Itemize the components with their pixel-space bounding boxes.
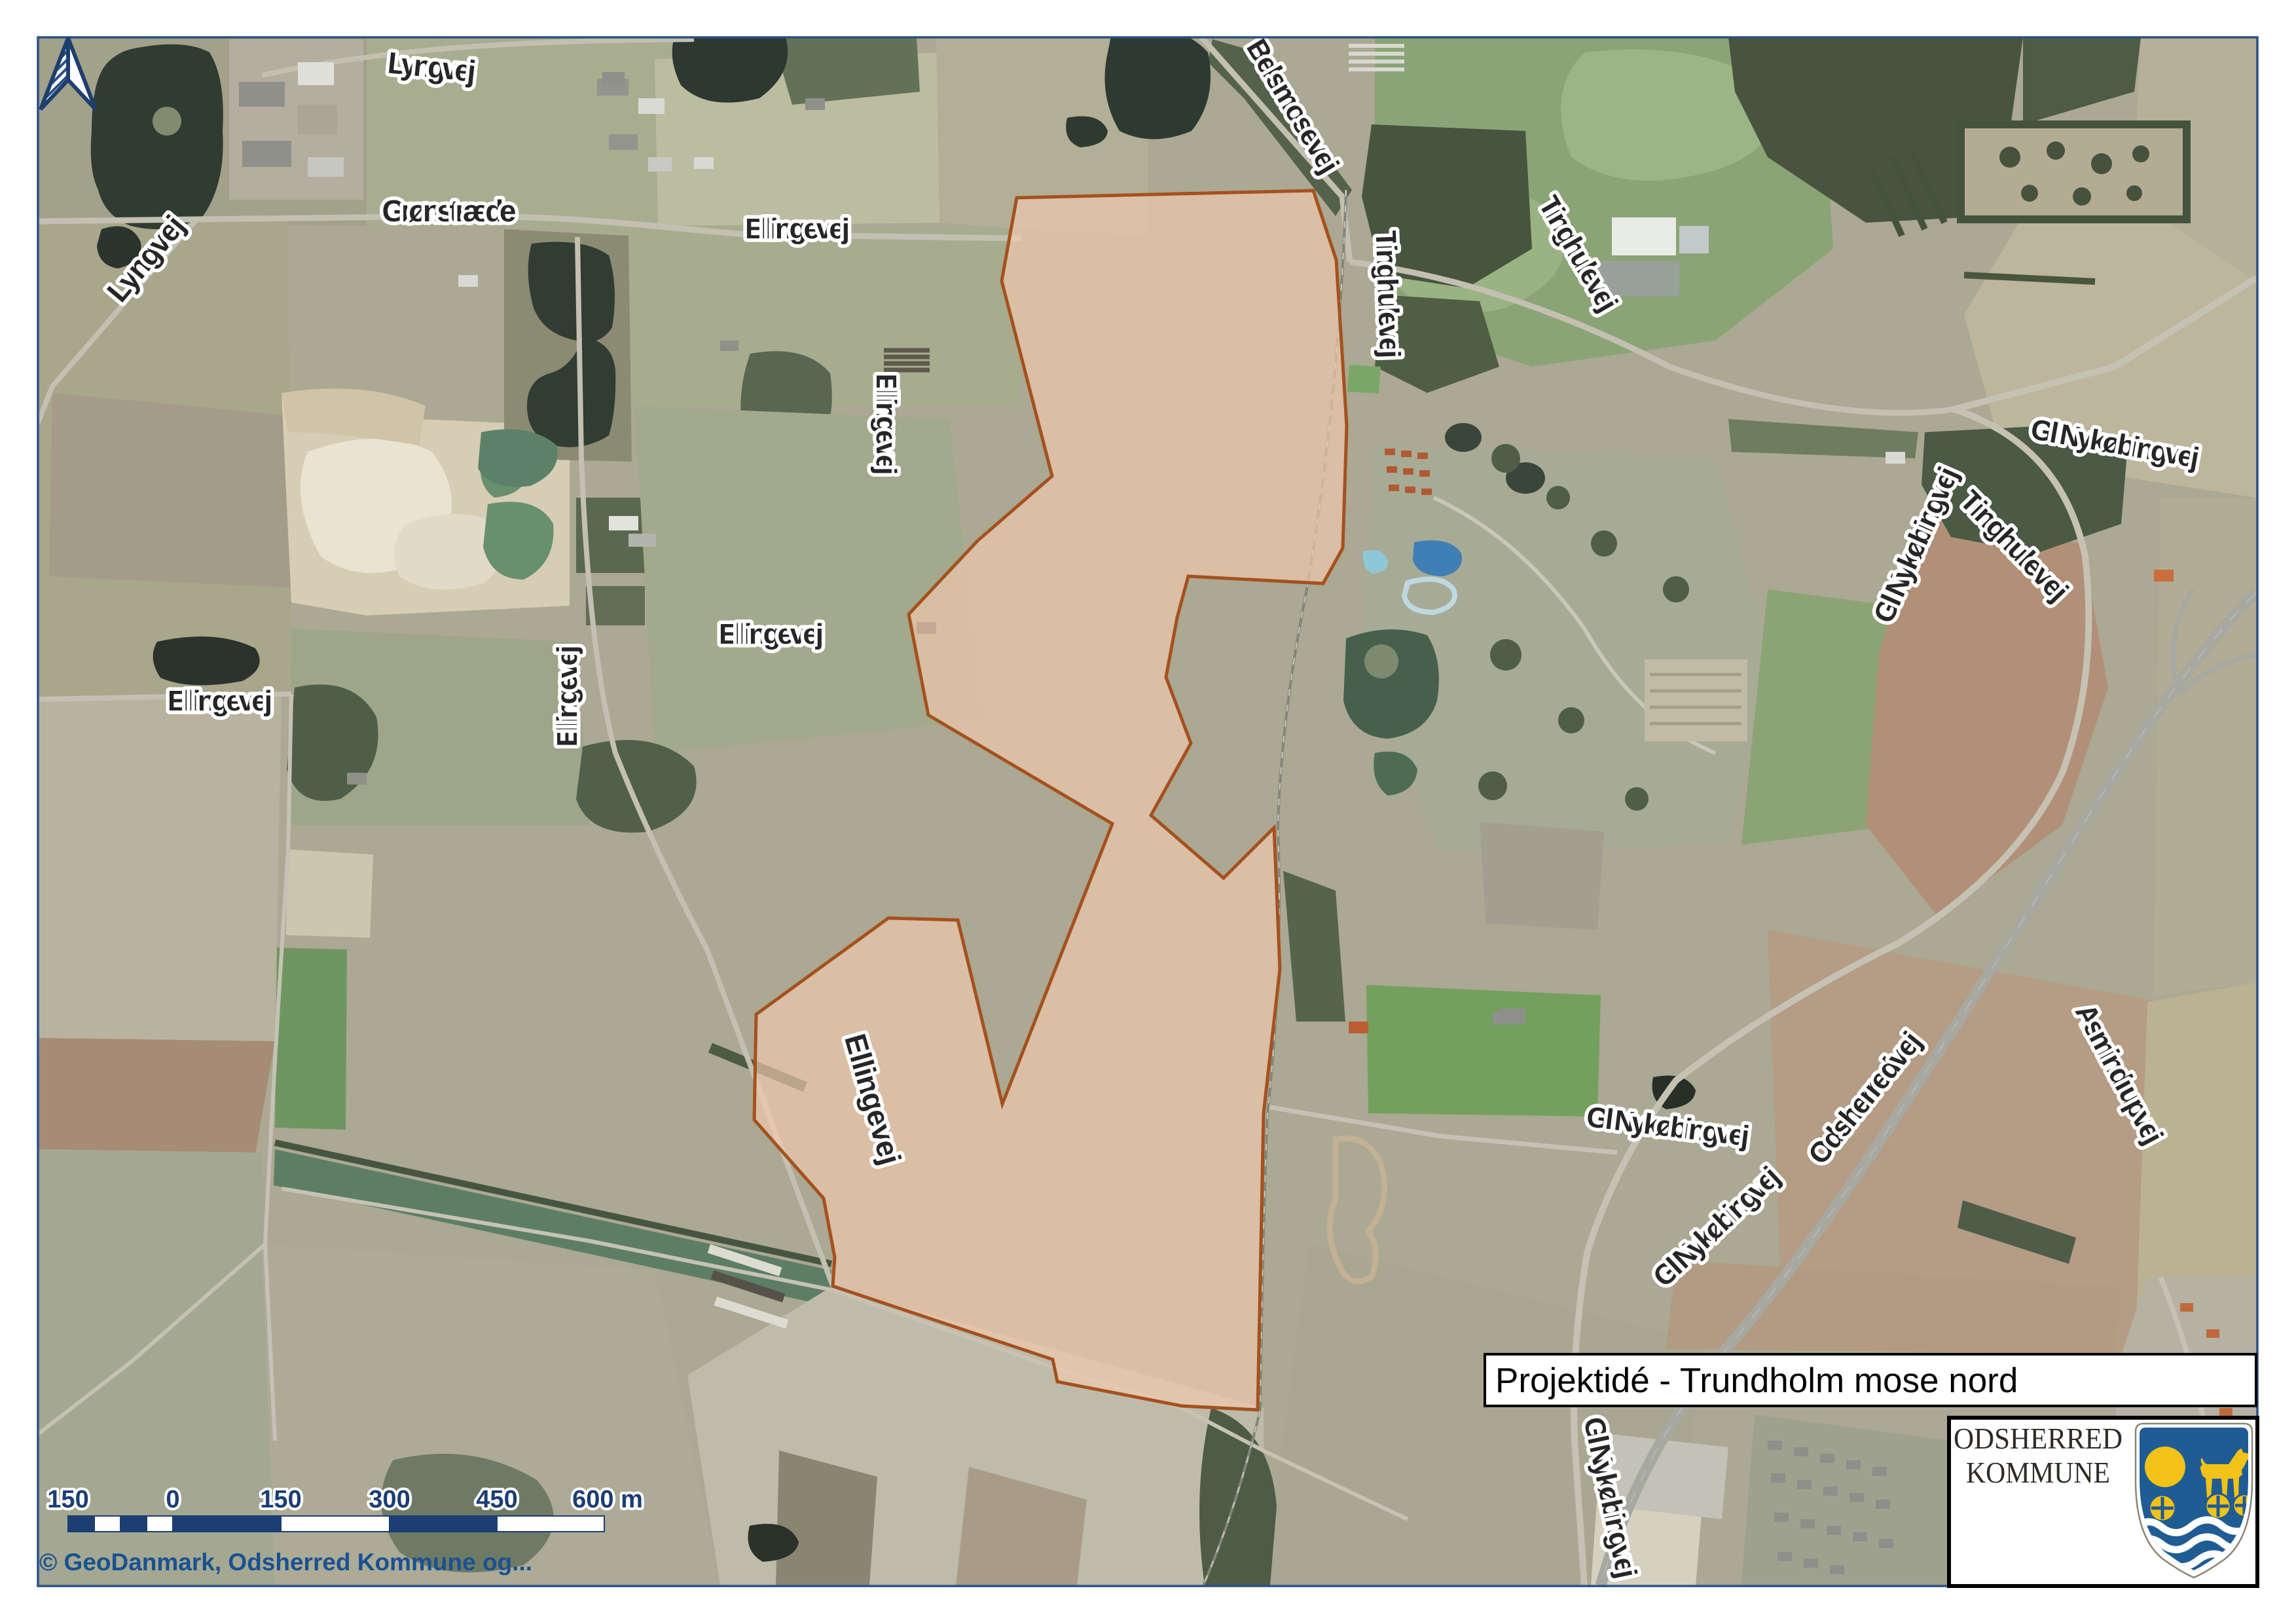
svg-text:150: 150 [47, 1486, 88, 1513]
svg-text:Ellingevej: Ellingevej [870, 374, 902, 475]
svg-text:KOMMUNE: KOMMUNE [1966, 1456, 2110, 1489]
svg-text:Ellingevej: Ellingevej [719, 618, 824, 650]
svg-text:Ellingevej: Ellingevej [168, 685, 272, 717]
svg-text:300: 300 [369, 1486, 410, 1513]
svg-text:450: 450 [476, 1486, 517, 1513]
svg-text:0: 0 [166, 1486, 179, 1513]
svg-text:Grønstræde: Grønstræde [382, 194, 517, 228]
svg-text:Projektidé - Trundholm mose no: Projektidé - Trundholm mose nord [1495, 1361, 2018, 1400]
svg-text:© GeoDanmark, Odsherred Kommun: © GeoDanmark, Odsherred Kommune og... [39, 1549, 532, 1576]
svg-text:Tinghulevej: Tinghulevej [1370, 230, 1406, 359]
svg-text:ODSHERRED: ODSHERRED [1954, 1422, 2123, 1455]
svg-text:Ellingevej: Ellingevej [745, 213, 850, 245]
svg-text:Ellingevej: Ellingevej [551, 646, 583, 747]
svg-text:600 m: 600 m [572, 1486, 643, 1513]
svg-text:150: 150 [260, 1486, 301, 1513]
